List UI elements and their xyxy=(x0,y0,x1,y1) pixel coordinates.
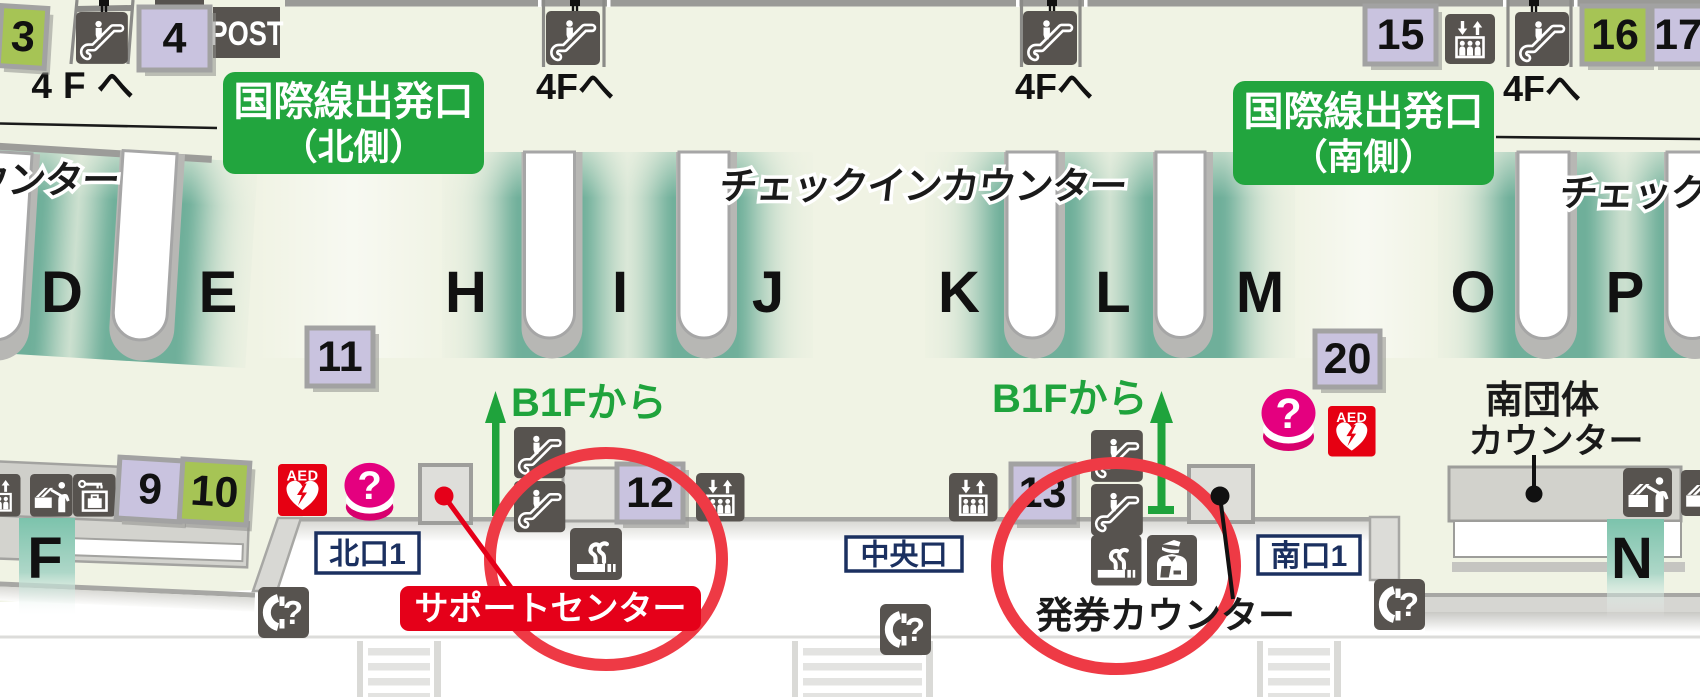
svg-text:D: D xyxy=(41,260,83,325)
svg-text:3: 3 xyxy=(10,12,37,61)
svg-text:F: F xyxy=(27,526,62,591)
svg-text:J: J xyxy=(752,260,784,325)
svg-text:南団体: 南団体 xyxy=(1485,380,1599,422)
svg-text:4Fへ: 4Fへ xyxy=(1015,66,1093,107)
svg-text:P: P xyxy=(1606,260,1645,325)
svg-text:4: 4 xyxy=(163,15,187,63)
svg-text:発券カウンター: 発券カウンター xyxy=(1035,595,1295,636)
svg-text:B1Fから: B1Fから xyxy=(992,377,1148,421)
svg-text:11: 11 xyxy=(317,333,362,381)
svg-text:17: 17 xyxy=(1654,11,1700,59)
svg-text:10: 10 xyxy=(189,467,240,518)
svg-text:I: I xyxy=(612,260,628,325)
svg-text:15: 15 xyxy=(1377,11,1425,59)
svg-text:国際線出発口: 国際線出発口 xyxy=(234,80,474,124)
svg-text:20: 20 xyxy=(1324,335,1372,383)
svg-text:K: K xyxy=(938,260,980,325)
svg-text:M: M xyxy=(1236,260,1284,325)
svg-text:?: ? xyxy=(357,464,381,508)
svg-text:チェックインカウンター: チェックインカウンター xyxy=(717,166,1128,208)
svg-text:16: 16 xyxy=(1591,11,1639,59)
svg-text:POST: POST xyxy=(209,14,283,53)
svg-text:?: ? xyxy=(283,594,303,631)
svg-text:4Fへ: 4Fへ xyxy=(536,66,614,107)
svg-text:?: ? xyxy=(1275,390,1301,438)
svg-text:B1Fから: B1Fから xyxy=(511,381,667,425)
svg-text:中央口: 中央口 xyxy=(860,538,947,571)
svg-text:?: ? xyxy=(1399,586,1419,623)
svg-text:12: 12 xyxy=(626,469,674,517)
svg-text:H: H xyxy=(445,260,487,325)
svg-text:カウンター: カウンター xyxy=(1468,422,1643,461)
svg-text:9: 9 xyxy=(137,465,164,514)
svg-text:E: E xyxy=(199,260,238,325)
svg-text:L: L xyxy=(1095,260,1130,325)
svg-text:国際線出発口: 国際線出発口 xyxy=(1244,90,1484,134)
svg-text:AED: AED xyxy=(1336,409,1367,425)
svg-text:4Fへ: 4Fへ xyxy=(1503,68,1581,109)
svg-text:O: O xyxy=(1450,260,1495,325)
svg-text:N: N xyxy=(1611,526,1653,591)
svg-text:?: ? xyxy=(905,611,925,648)
svg-text:南口1: 南口1 xyxy=(1271,540,1348,573)
svg-text:サポートセンター: サポートセンター xyxy=(415,589,687,628)
svg-text:（南側）: （南側） xyxy=(1291,136,1435,177)
svg-text:（北側）: （北側） xyxy=(281,126,425,167)
svg-text:北口1: 北口1 xyxy=(329,538,406,571)
svg-text:チェックインカウンター: チェックインカウンター xyxy=(1557,173,1700,215)
svg-text:チェックインカウンター: チェックインカウンター xyxy=(0,160,121,202)
